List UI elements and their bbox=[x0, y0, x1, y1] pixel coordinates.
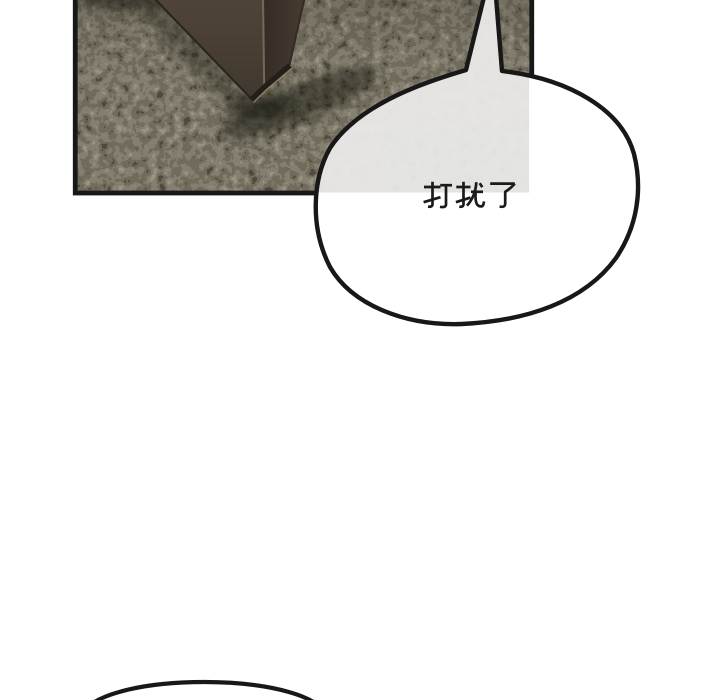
comic-page: 打扰了 bbox=[0, 0, 720, 700]
cabinet-edge-highlight bbox=[263, 0, 264, 86]
comic-page-canvas bbox=[0, 0, 720, 700]
